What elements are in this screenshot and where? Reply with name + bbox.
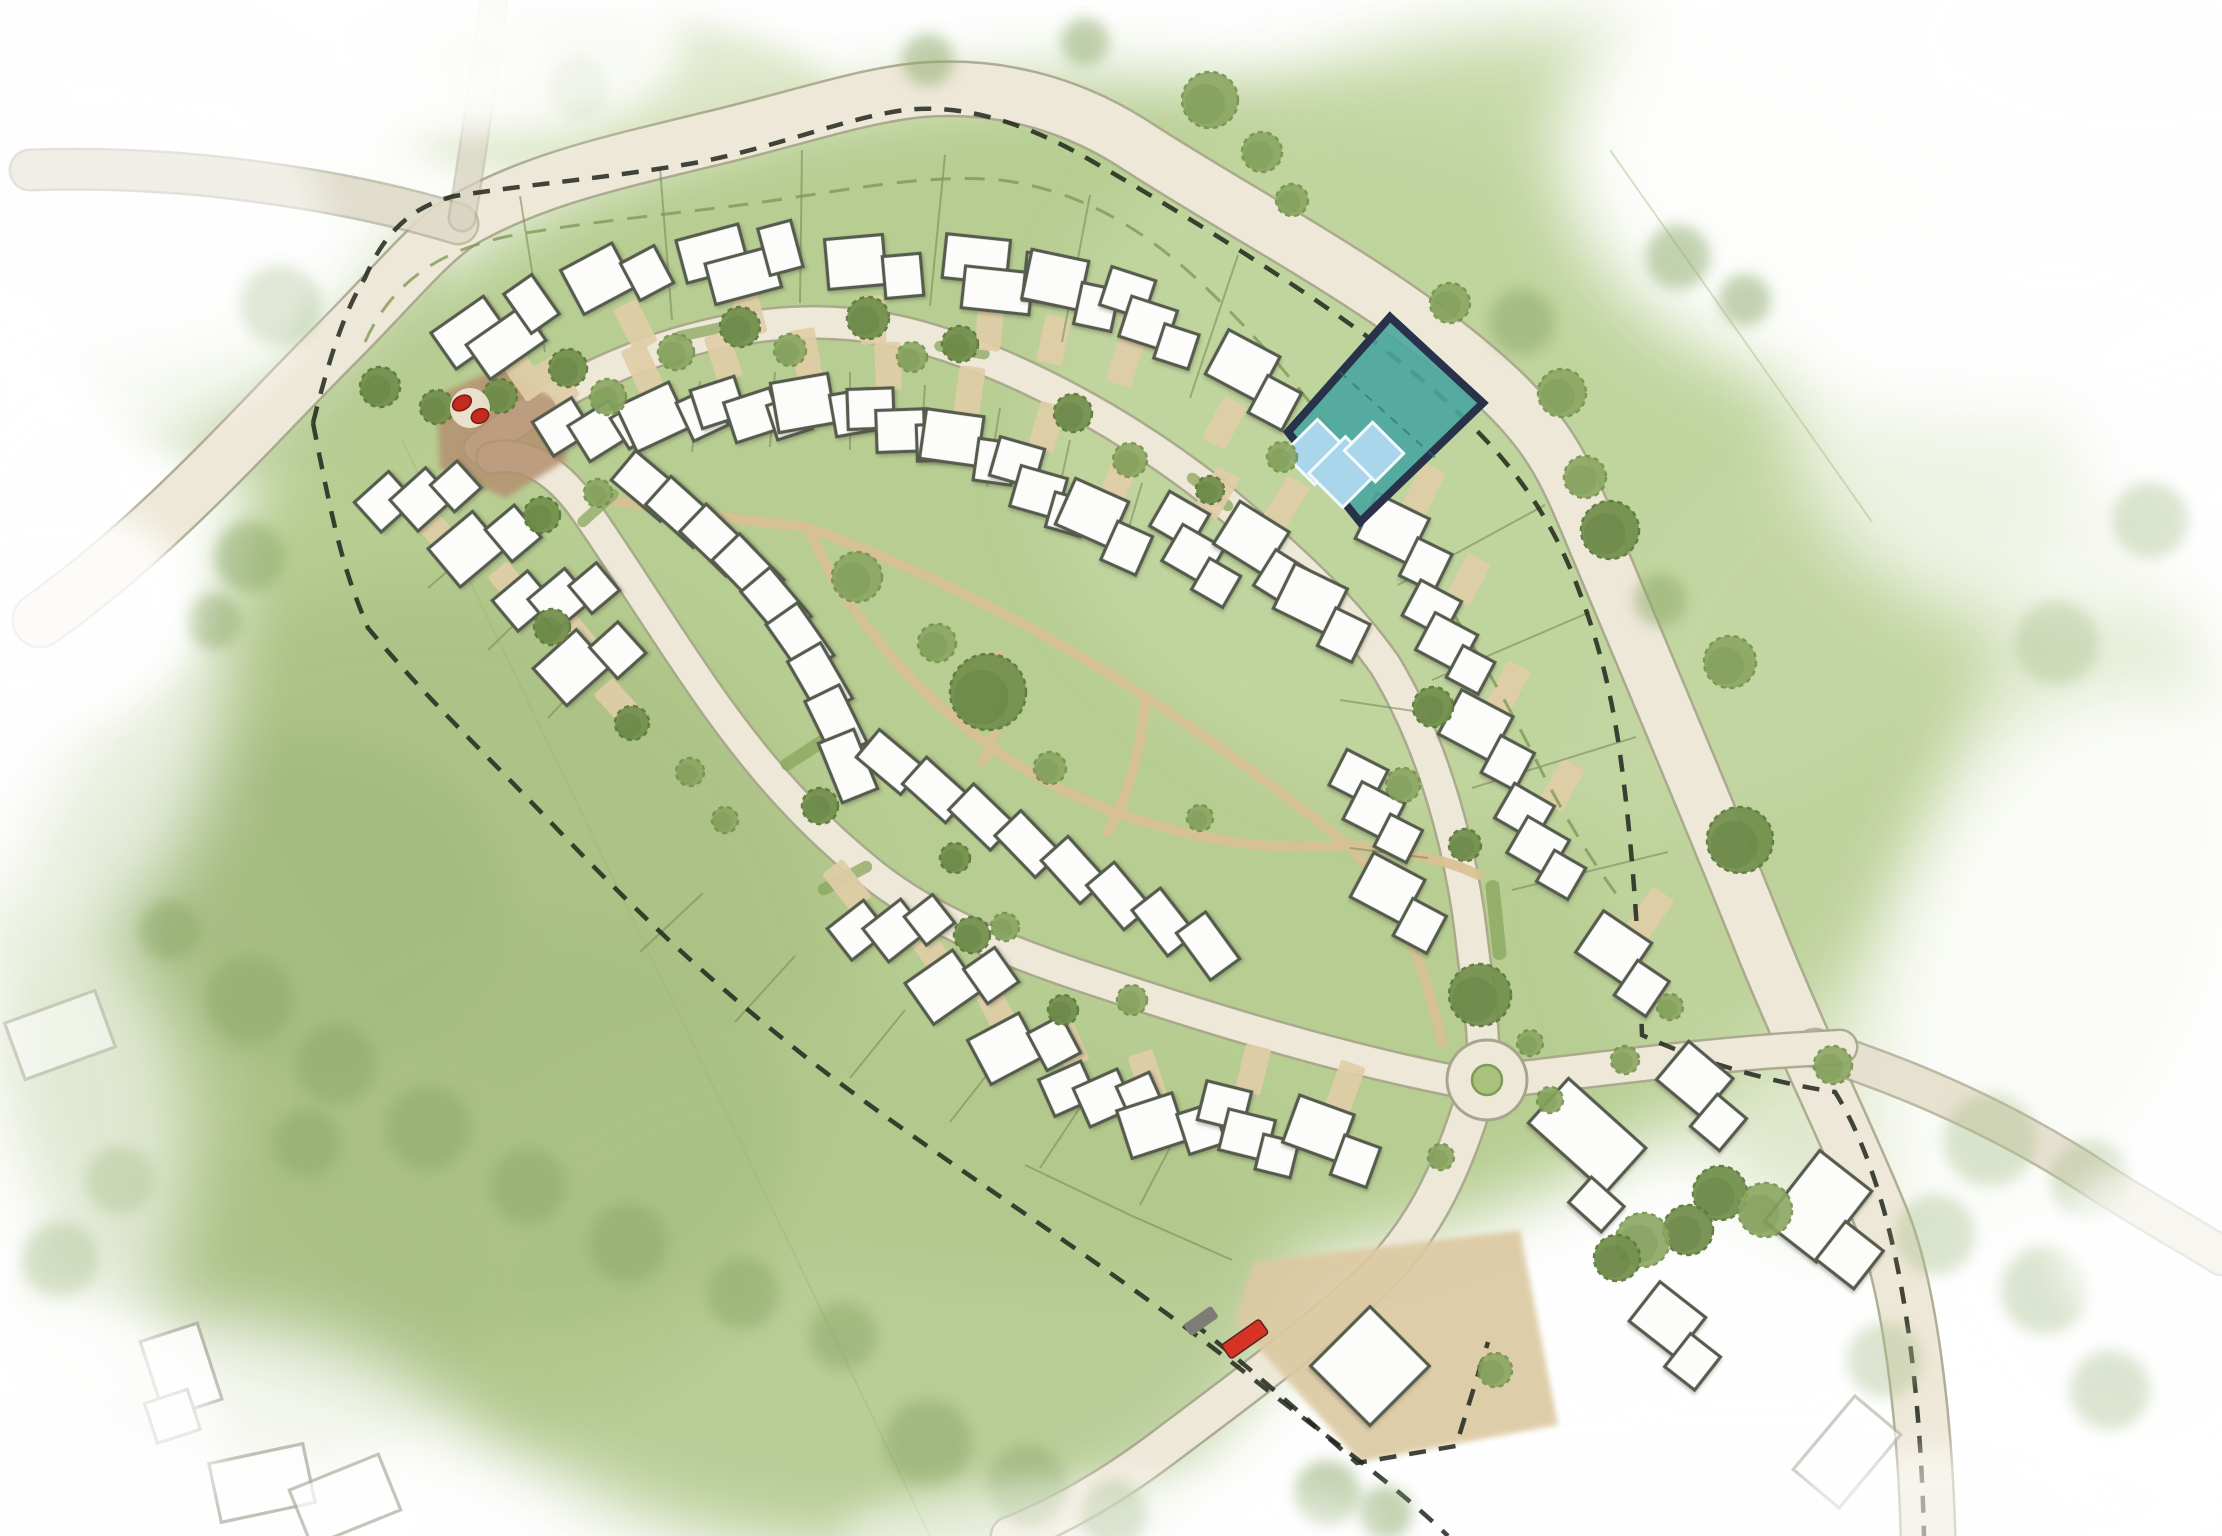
tree-soft [1634,574,1686,626]
tree-shade [1707,647,1744,684]
tree-soft [273,1109,341,1177]
tree-shade [992,919,1012,939]
tree-icon [720,307,760,347]
tree-shade [1596,1245,1629,1278]
tree-icon [1267,442,1297,472]
tree-shade [660,342,686,368]
tree-shade [1566,465,1596,495]
tree-shade [592,387,618,413]
tree-shade [1584,513,1626,555]
tree-shade [1115,450,1139,474]
tree-soft [22,1222,98,1298]
tree-icon [1537,1087,1563,1113]
tree-icon [658,334,694,370]
tree-shade [849,306,879,336]
tree-shade [1452,977,1497,1022]
tree-icon [1117,985,1147,1015]
tree-icon [1517,1030,1543,1056]
tree-shade [1666,1216,1702,1252]
tree-shade [526,505,552,531]
tree-shade [1388,775,1412,799]
tree-soft [1061,18,1109,66]
tree-shade [1415,695,1444,724]
tree-icon [918,624,956,662]
tree-icon [950,654,1026,730]
tree-shade [1710,821,1758,869]
tree-shade [1197,482,1217,502]
tree-soft [902,34,954,86]
tree-icon [1054,394,1092,432]
tree-soft [186,593,242,649]
tree-icon [802,788,838,824]
tree-icon [832,552,882,602]
tree-shade [1741,1194,1780,1233]
tree-shade [422,397,446,421]
tree-icon [1413,687,1453,727]
house-block [825,235,887,290]
tree-shade [1451,836,1474,859]
tree-soft [2070,1350,2150,1430]
tree-icon [774,334,806,366]
tree-icon [1564,456,1606,498]
tree-shade [1185,84,1225,124]
tree-shade [1188,810,1207,829]
tree-shade [899,348,921,370]
tree-soft [1719,274,1771,326]
tree-shade [1056,402,1083,429]
tree-icon [1034,752,1066,784]
tree-shade [585,485,605,505]
tree-shade [1050,1001,1072,1023]
tree-shade [1658,999,1677,1018]
tree-soft [86,1146,154,1214]
house-block [882,253,924,298]
tree-icon [534,609,570,645]
tree-shade [1269,448,1291,470]
tree-icon [1187,805,1213,831]
tree-icon [712,807,738,833]
tree-icon [420,390,454,424]
tree-shade [677,764,697,784]
tree-soft [1895,1195,1975,1275]
tree-soft [206,956,294,1044]
tree-shade [1244,140,1273,169]
tree-soft [588,1203,668,1283]
tree-shade [1429,1149,1448,1168]
tree-icon [1113,443,1147,477]
tree-shade [954,670,1009,725]
tree-icon [1182,72,1238,128]
tree-icon [1657,994,1683,1020]
tree-shade [1278,191,1301,214]
tree-icon [1663,1205,1713,1255]
tree-icon [549,349,587,387]
tree-icon [1430,283,1470,323]
tree-icon [942,326,978,362]
tree-icon [1707,807,1773,873]
tree-soft [707,1257,779,1329]
tree-soft [296,1024,376,1104]
tree-icon [1594,1235,1640,1281]
tree-soft [1944,1094,2036,1186]
tree-icon [991,913,1019,941]
site-plan-canvas [0,0,2222,1536]
tree-soft [884,1399,972,1487]
roundabout-island [1472,1065,1502,1095]
tree-soft [809,1302,877,1370]
tree-shade [1480,1360,1504,1384]
tree-icon [1814,1046,1852,1084]
tree-icon [1611,1046,1639,1074]
tree-shade [804,796,830,822]
tree-icon [1196,476,1224,504]
site-plan [0,0,2222,1536]
house-block [920,409,984,467]
tree-soft [140,900,200,960]
tree-shade [942,849,964,871]
tree-shade [617,713,641,737]
tree-icon [590,379,626,415]
tree-shade [1612,1052,1632,1072]
tree-icon [1538,369,1586,417]
tree-icon [1276,184,1308,216]
tree-icon [1581,501,1639,559]
tree-icon [897,342,927,372]
tree-shade [722,315,751,344]
tree-icon [1704,636,1756,688]
tree-shade [551,357,578,384]
tree-soft [215,522,285,592]
tree-icon [847,297,889,339]
house-block [770,373,836,432]
tree-shade [713,812,732,831]
tree-shade [776,341,799,364]
tree-icon [1449,829,1481,861]
tree-shade [1432,291,1461,320]
tree-shade [1119,991,1141,1013]
tree-icon [1386,768,1420,802]
tree-shade [956,925,982,951]
tree-icon [524,497,560,533]
tree-shade [362,375,391,404]
tree-shade [1518,1035,1537,1054]
tree-icon [584,479,612,507]
tree-soft [1489,289,1555,355]
tree-icon [676,758,704,786]
tree-icon [615,706,649,740]
tree-icon [1242,132,1282,172]
tree-soft [1847,1322,1923,1398]
tree-shade [536,617,562,643]
tree-icon [1478,1353,1512,1387]
tree-icon [360,367,400,407]
tree-soft [1646,225,1710,289]
tree-soft [490,1148,566,1224]
tree-shade [944,334,970,360]
tree-icon [1738,1183,1792,1237]
tree-icon [1048,995,1078,1025]
tree-soft [386,1086,470,1170]
tree-icon [1449,964,1511,1026]
tree-icon [1428,1144,1454,1170]
tree-soft [2112,482,2188,558]
tree-icon [954,917,990,953]
tree-shade [1540,379,1575,414]
tree-shade [835,563,871,599]
tree-soft [2015,601,2099,685]
tree-shade [1036,759,1059,782]
tree-shade [1538,1092,1557,1111]
tree-shade [1816,1054,1843,1081]
driveway [874,342,902,391]
tree-shade [920,632,947,659]
tree-icon [940,843,970,873]
